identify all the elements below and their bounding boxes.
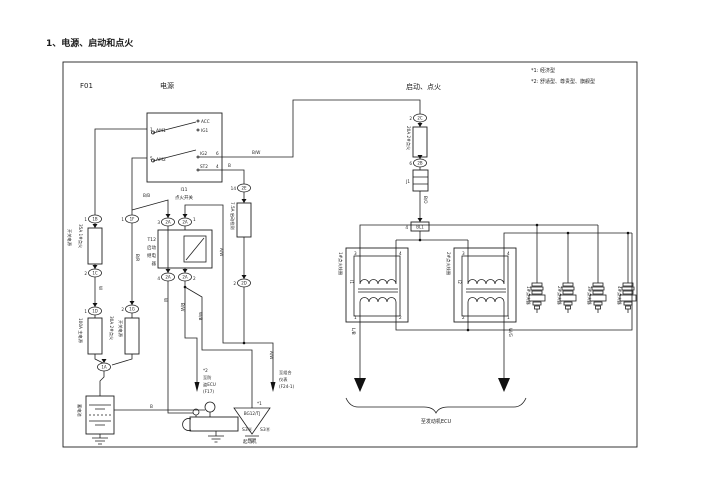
- connector-pin: 1: [121, 217, 124, 222]
- theft-note: *2: [203, 368, 208, 373]
- wire-label: W/G: [508, 328, 513, 337]
- contact-ig2: [197, 156, 199, 158]
- coil2-pin: 3: [462, 251, 465, 256]
- ignition-coil-1: 3 4 1 2 1#点火线圈 I1: [337, 248, 408, 322]
- contact-acc: [197, 120, 199, 122]
- spark-plug-2: 2#点火器: [556, 283, 576, 313]
- note-1: *1: 经济型: [531, 67, 555, 74]
- page-title: 1、电源、启动和点火: [46, 37, 134, 49]
- bl1-code: BL1: [416, 225, 424, 230]
- coil2-id: I2: [457, 280, 462, 284]
- coil1-label: 1#点火线圈: [337, 252, 344, 275]
- switch-name: 点火开关: [175, 194, 193, 201]
- connector-pin: 1: [193, 217, 196, 222]
- wire-label: B/W: [252, 150, 260, 155]
- connector-code: 1B: [92, 217, 98, 222]
- starter-body: [190, 417, 238, 431]
- connector-code: 2D: [241, 281, 247, 286]
- theft-line: (F17): [203, 389, 214, 394]
- spark-plug-1: 1#点火器: [525, 283, 545, 313]
- label-am1: AM1: [156, 128, 166, 134]
- wire-label: B/O: [423, 196, 428, 204]
- coil1-pin: 1: [354, 315, 357, 320]
- fuse-start-detect: [237, 203, 251, 237]
- coil2-inner-box: [462, 256, 508, 316]
- coil2-pin: 1: [507, 315, 510, 320]
- ignition-switch-box: [147, 113, 222, 182]
- fuse-ignition: [413, 127, 427, 157]
- pin-st2: 4: [216, 164, 219, 169]
- connector-code: 2E: [241, 186, 247, 191]
- relay-name-line: 器: [152, 261, 157, 267]
- connector-pin: 2: [84, 271, 87, 276]
- wire-label: W/B: [198, 312, 203, 321]
- fuses: 开关电源 35A 1#点火 100A 主电源 30A 2#点火 开关电源 20A…: [66, 126, 427, 354]
- bl1-pin: 4: [405, 225, 408, 230]
- theft-line: 至防: [203, 374, 211, 381]
- starter-motor: S3Ⓐ S3Ⓑ 起动机: [183, 402, 271, 445]
- fuse-label: 开关电源: [66, 229, 73, 247]
- connector-code: 2B: [417, 161, 423, 166]
- pin-am1: 1: [150, 127, 153, 132]
- spark-plug-label: 4#点火器: [616, 286, 622, 306]
- fuse-ig2: [125, 318, 139, 354]
- wire-label: A/W: [269, 351, 274, 359]
- engine-ecu-brace: [346, 398, 526, 413]
- coil2-label: 2#点火线圈: [445, 252, 452, 275]
- label-ig2: IG2: [200, 151, 207, 156]
- joint-connector-id: J1: [405, 179, 410, 184]
- fuse-label: 35A 1#点火: [77, 224, 83, 249]
- battery: 蓄电池: [76, 396, 114, 444]
- spark-plugs: 1#点火器 2#点火器 3#点火器 4#点火器: [525, 283, 636, 313]
- coil1-outer-box: [346, 248, 408, 322]
- cluster-line: 至组合: [279, 369, 292, 376]
- connector-pin: 2: [193, 276, 196, 281]
- header: F01 电源 启动、点火 *1: 经济型 *2: 舒适型、尊贵型、旗舰型: [80, 67, 595, 91]
- arrow-to-cluster: [271, 382, 276, 392]
- coil2-pin: 4: [507, 251, 510, 256]
- connector-pin: 1: [84, 217, 87, 222]
- label-acc: ACC: [201, 119, 210, 124]
- connector-pin: 2: [233, 281, 236, 286]
- pin-am2: 5: [150, 156, 153, 161]
- wire-label: W: [163, 298, 168, 302]
- arrow-to-theft-ecu: [195, 382, 200, 392]
- starter-relay: T12 启动 继电 器: [147, 226, 212, 273]
- contact-ig1: [197, 129, 199, 131]
- joint-connector-box: [413, 170, 428, 191]
- coil2-pin: 2: [462, 315, 465, 320]
- cluster-line: 仪表: [279, 376, 288, 383]
- battery-label: 蓄电池: [76, 404, 83, 417]
- section-start-label: 启动、点火: [406, 82, 441, 91]
- label-st2: ST2: [200, 164, 208, 169]
- schematic-canvas: 1、电源、启动和点火 F01 电源 启动、点火 *1: 经济型 *2: 舒适型、…: [0, 0, 707, 500]
- fuse-label: 30A 2#点火: [108, 316, 114, 341]
- wire-label: A/W: [219, 248, 224, 256]
- coil1-inner-box: [354, 256, 400, 316]
- connector-code: 1G: [129, 307, 135, 312]
- label-am2: AM2: [156, 157, 166, 163]
- wire-labels: B/W B B/B B/R W W B/W W/B A/W A/W B B/O …: [98, 150, 513, 409]
- ground-note: *1: [257, 401, 262, 406]
- theft-line: 盗ECU: [203, 381, 216, 387]
- section-power-label: 电源: [160, 81, 174, 90]
- wire-label: B: [150, 404, 153, 409]
- wiring-lines: [95, 100, 632, 438]
- pin-ig2: 6: [216, 151, 219, 156]
- coil1-id: I1: [349, 280, 354, 284]
- ignition-coil-2: 3 4 2 1 2#点火线圈 I2: [445, 248, 516, 322]
- label-ig1: IG1: [201, 128, 208, 133]
- relay-id: T12: [147, 237, 157, 243]
- relay-name-line: 启动: [147, 244, 156, 251]
- connector-pin: 3: [157, 220, 160, 225]
- connector-arrows: [93, 123, 423, 363]
- arrow-to-engine-ecu-2: [498, 378, 510, 392]
- spark-plug-4: 4#点火器: [616, 283, 636, 313]
- connector-pin: 1: [84, 309, 87, 314]
- arrow-to-engine-ecu-1: [354, 378, 366, 392]
- starter-terminal-b: S3Ⓑ: [260, 426, 271, 433]
- cluster-line: (F24-1): [279, 384, 295, 389]
- starter-b-terminal: [205, 402, 215, 412]
- connector-pin: 4: [157, 276, 160, 281]
- coil2-outer-box: [454, 248, 516, 322]
- wire-label: L/B: [351, 328, 356, 335]
- wire-label: B/B: [143, 193, 150, 198]
- wire-label: B: [228, 163, 231, 168]
- wire-label: B/W: [180, 303, 185, 311]
- connector-code: 2A: [165, 220, 171, 225]
- spark-plug-label: 1#点火器: [525, 286, 531, 306]
- coil1-pin: 3: [354, 251, 357, 256]
- wire-label: B/R: [135, 254, 140, 261]
- spark-plug-label: 2#点火器: [556, 286, 562, 306]
- wire-label: W: [98, 286, 103, 290]
- connector-pin: 14: [231, 186, 237, 191]
- connector-code: 2A: [182, 220, 188, 225]
- note-2: *2: 舒适型、尊贵型、旗舰型: [531, 78, 595, 85]
- connector-pin: 2: [121, 307, 124, 312]
- relay-name-line: 继电: [147, 252, 156, 259]
- switch-id: I11: [180, 187, 187, 193]
- connector-code: 1F: [130, 217, 136, 222]
- fuse-label: 开关电源: [117, 320, 124, 338]
- connector-code: 2A: [165, 275, 171, 280]
- connector-pin: 2: [409, 116, 412, 121]
- fuse-label: 7.5A 启动检测: [229, 202, 236, 230]
- connector-code: 2A: [182, 275, 188, 280]
- ground-code: BG12/TJ: [244, 411, 261, 416]
- spark-plug-3: 3#点火器: [586, 283, 606, 313]
- frame-code: F01: [80, 82, 93, 90]
- connector-code: 1A: [101, 365, 107, 370]
- engine-ecu-label: 至发动机ECU: [421, 418, 452, 425]
- coil1-pin: 4: [399, 251, 402, 256]
- connector-pin: 6: [409, 161, 412, 166]
- fuse-main: [88, 318, 102, 354]
- fuse-ig1: [88, 228, 102, 264]
- connector-code: 1D: [92, 309, 98, 314]
- starter-ground: [208, 436, 224, 442]
- connector-code: 1C: [92, 271, 98, 276]
- wiring-diagram-page: 1、电源、启动和点火 F01 电源 启动、点火 *1: 经济型 *2: 舒适型、…: [0, 0, 707, 500]
- fuse-label: 20A 2#点火: [405, 126, 411, 151]
- coil1-pin: 2: [399, 315, 402, 320]
- connector-code: 2C: [417, 116, 423, 121]
- relay-contact-blade: [186, 238, 204, 260]
- contact-st2: [197, 169, 199, 171]
- fuse-label: 100A 主电源: [77, 318, 84, 344]
- spark-plug-label: 3#点火器: [586, 286, 592, 306]
- battery-ground: [92, 438, 108, 444]
